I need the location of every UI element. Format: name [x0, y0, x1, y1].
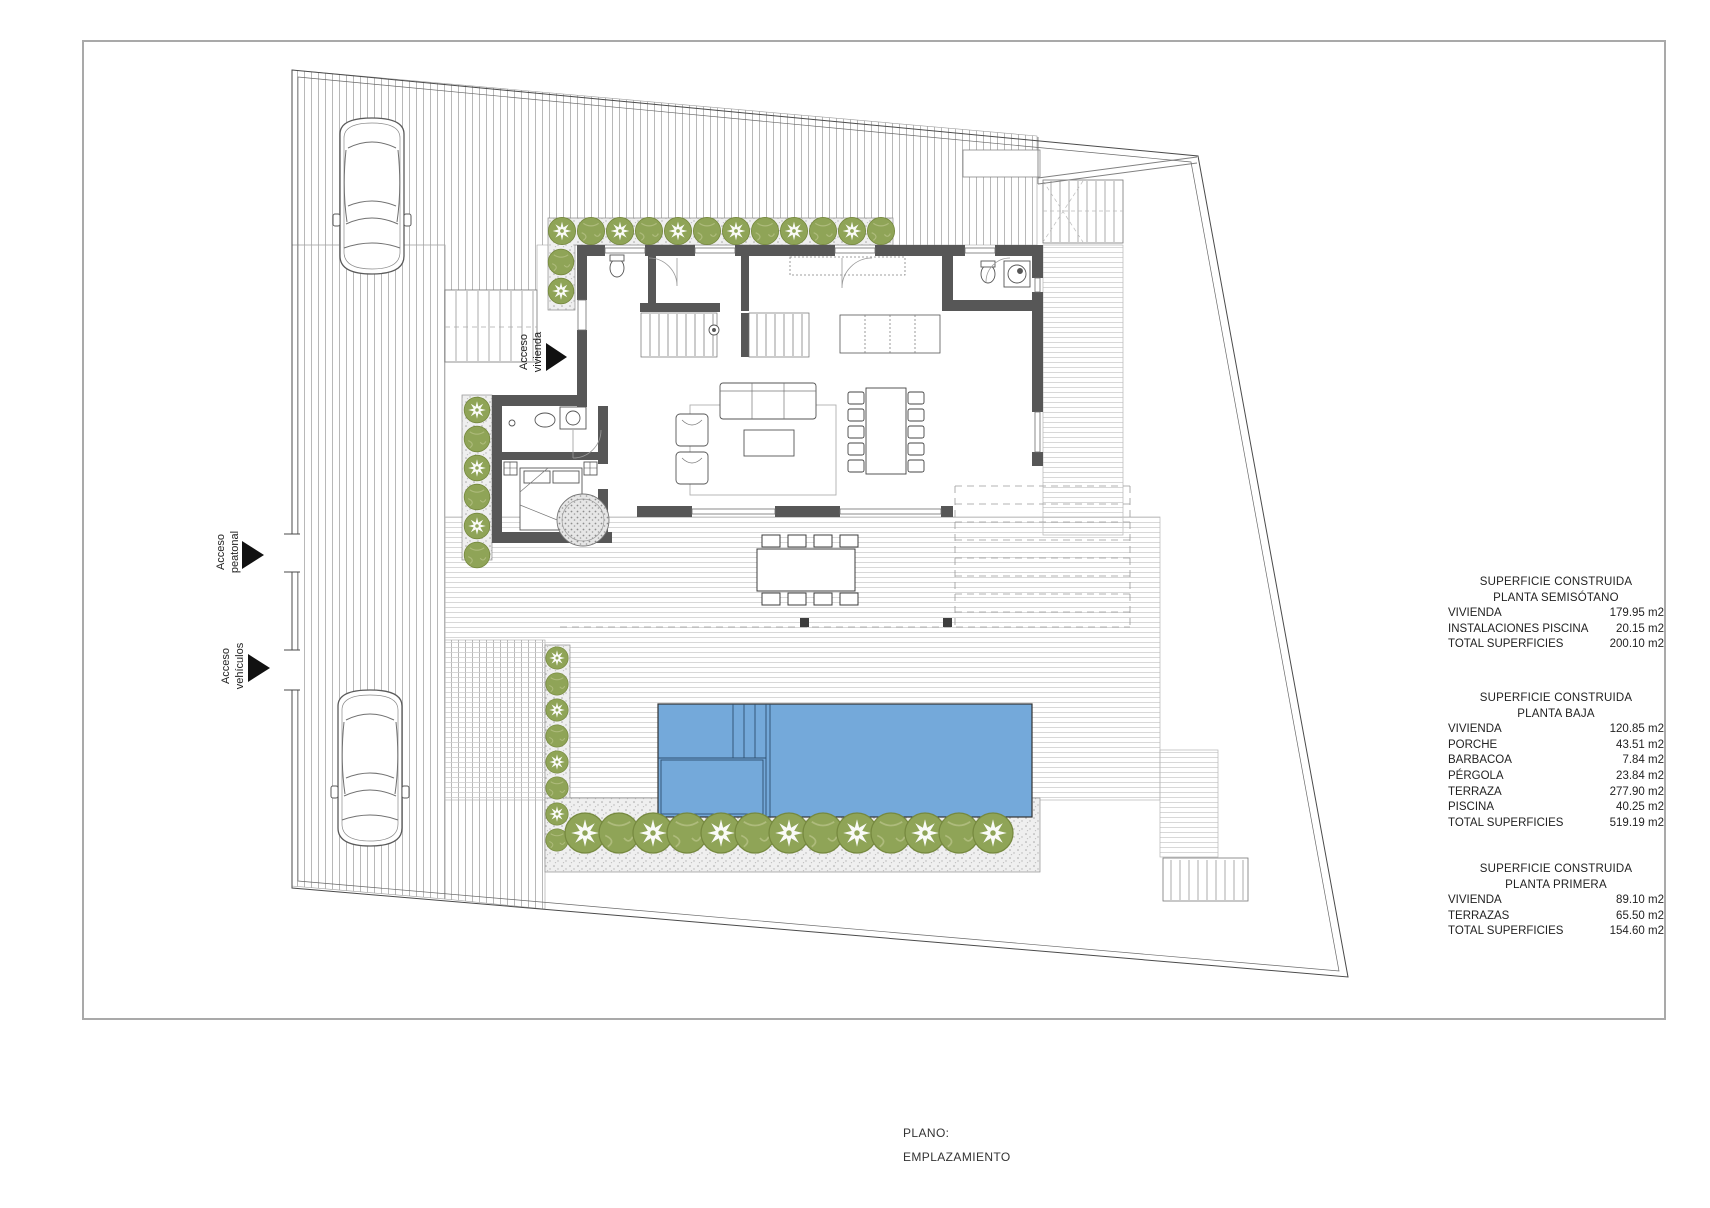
title-block: PLANO: EMPLAZAMIENTO — [903, 1126, 1011, 1164]
table-title: SUPERFICIE CONSTRUIDA — [1448, 575, 1664, 591]
tree-icon — [635, 217, 662, 244]
car-icon — [333, 118, 411, 274]
area-table-semisotano: SUPERFICIE CONSTRUIDA PLANTA SEMISÓTANO … — [1448, 575, 1664, 653]
window-glazing — [578, 248, 1040, 514]
table-subtitle: PLANTA BAJA — [1448, 707, 1664, 723]
tree-icon — [577, 217, 604, 244]
table-row: BARBACOA 7.84 m2 — [1448, 753, 1664, 769]
row-label: VIVIENDA — [1448, 893, 1502, 909]
row-value: 519.19 m2 — [1610, 816, 1664, 832]
tree-icon — [838, 217, 865, 244]
pedestrian-access-label-line1: Acceso — [214, 534, 228, 570]
area-table-baja: SUPERFICIE CONSTRUIDA PLANTA BAJA VIVIEN… — [1448, 691, 1664, 831]
indoor-dining-table — [848, 388, 924, 474]
tree-icon — [548, 278, 574, 304]
table-row: VIVIENDA 89.10 m2 — [1448, 893, 1664, 909]
table-row: TOTAL SUPERFICIES 154.60 m2 — [1448, 924, 1664, 940]
pedestrian-access-arrow-icon — [242, 541, 264, 569]
bedroom-wing — [504, 407, 609, 546]
tree-icon — [780, 217, 807, 244]
table-row: TERRAZA 277.90 m2 — [1448, 785, 1664, 801]
table-row: TOTAL SUPERFICIES 200.10 m2 — [1448, 637, 1664, 653]
tree-icon — [546, 725, 568, 747]
table-row: VIVIENDA 120.85 m2 — [1448, 722, 1664, 738]
tree-icon — [973, 813, 1013, 853]
top-gate — [963, 150, 1040, 177]
tree-icon — [722, 217, 749, 244]
tree-icon — [546, 647, 568, 669]
row-label: PÉRGOLA — [1448, 769, 1504, 785]
tree-icon — [867, 217, 894, 244]
swimming-pool — [658, 704, 1032, 817]
tree-icon — [548, 217, 575, 244]
row-label: PISCINA — [1448, 800, 1494, 816]
row-value: 89.10 m2 — [1616, 893, 1664, 909]
tree-icon — [464, 513, 490, 539]
row-label: INSTALACIONES PISCINA — [1448, 622, 1588, 638]
pedestrian-access-label: Acceso peatonal — [211, 512, 245, 592]
row-value: 277.90 m2 — [1610, 785, 1664, 801]
tree-icon — [664, 217, 691, 244]
row-value: 7.84 m2 — [1622, 753, 1664, 769]
kitchen-units — [790, 257, 940, 353]
row-value: 65.50 m2 — [1616, 909, 1664, 925]
car-icon — [331, 690, 409, 846]
tree-icon — [546, 803, 568, 825]
tree-icon — [809, 217, 836, 244]
row-label: TERRAZAS — [1448, 909, 1509, 925]
table-row: PISCINA 40.25 m2 — [1448, 800, 1664, 816]
area-table-primera: SUPERFICIE CONSTRUIDA PLANTA PRIMERA VIV… — [1448, 862, 1664, 940]
table-row: TERRAZAS 65.50 m2 — [1448, 909, 1664, 925]
tree-icon — [546, 673, 568, 695]
table-row: PORCHE 43.51 m2 — [1448, 738, 1664, 754]
plano-label: PLANO: — [903, 1126, 1011, 1140]
table-row: INSTALACIONES PISCINA 20.15 m2 — [1448, 622, 1664, 638]
row-label: VIVIENDA — [1448, 722, 1502, 738]
table-title: SUPERFICIE CONSTRUIDA — [1448, 691, 1664, 707]
row-label: TERRAZA — [1448, 785, 1502, 801]
table-subtitle: PLANTA PRIMERA — [1448, 878, 1664, 894]
row-value: 23.84 m2 — [1616, 769, 1664, 785]
table-row: VIVIENDA 179.95 m2 — [1448, 606, 1664, 622]
tree-icon — [606, 217, 633, 244]
table-row: TOTAL SUPERFICIES 519.19 m2 — [1448, 816, 1664, 832]
row-value: 179.95 m2 — [1610, 606, 1664, 622]
row-label: PORCHE — [1448, 738, 1497, 754]
tree-icon — [548, 249, 574, 275]
row-value: 154.60 m2 — [1610, 924, 1664, 940]
table-title: SUPERFICIE CONSTRUIDA — [1448, 862, 1664, 878]
tree-icon — [546, 777, 568, 799]
plano-value: EMPLAZAMIENTO — [903, 1150, 1011, 1164]
dwelling-access-label-line1: Acceso — [517, 334, 531, 370]
dwelling-access-label: Acceso vivienda — [514, 312, 548, 392]
living-room-furniture — [676, 383, 836, 495]
row-label: TOTAL SUPERFICIES — [1448, 924, 1563, 940]
tree-icon — [464, 455, 490, 481]
tree-icon — [751, 217, 778, 244]
row-label: TOTAL SUPERFICIES — [1448, 816, 1563, 832]
row-value: 40.25 m2 — [1616, 800, 1664, 816]
row-value: 120.85 m2 — [1610, 722, 1664, 738]
tree-icon — [464, 542, 490, 568]
table-subtitle: PLANTA SEMISÓTANO — [1448, 591, 1664, 607]
dwelling-access-arrow-icon — [546, 343, 567, 371]
vehicle-access-label-line1: Acceso — [219, 648, 233, 684]
vehicle-access-label-line2: vehículos — [233, 643, 247, 689]
tree-icon — [693, 217, 720, 244]
row-value: 43.51 m2 — [1616, 738, 1664, 754]
dwelling-access-label-line2: vivienda — [531, 332, 545, 372]
pedestrian-access-label-line2: peatonal — [228, 531, 242, 573]
tree-icon — [464, 397, 490, 423]
tree-icon — [546, 751, 568, 773]
tree-icon — [546, 699, 568, 721]
row-label: TOTAL SUPERFICIES — [1448, 637, 1563, 653]
row-value: 20.15 m2 — [1616, 622, 1664, 638]
tree-icon — [464, 426, 490, 452]
row-value: 200.10 m2 — [1610, 637, 1664, 653]
vehicle-access-arrow-icon — [248, 654, 270, 682]
table-row: PÉRGOLA 23.84 m2 — [1448, 769, 1664, 785]
row-label: BARBACOA — [1448, 753, 1512, 769]
vehicle-access-label: Acceso vehículos — [216, 626, 250, 706]
tree-icon — [464, 484, 490, 510]
interior-stairs — [641, 313, 809, 357]
row-label: VIVIENDA — [1448, 606, 1502, 622]
